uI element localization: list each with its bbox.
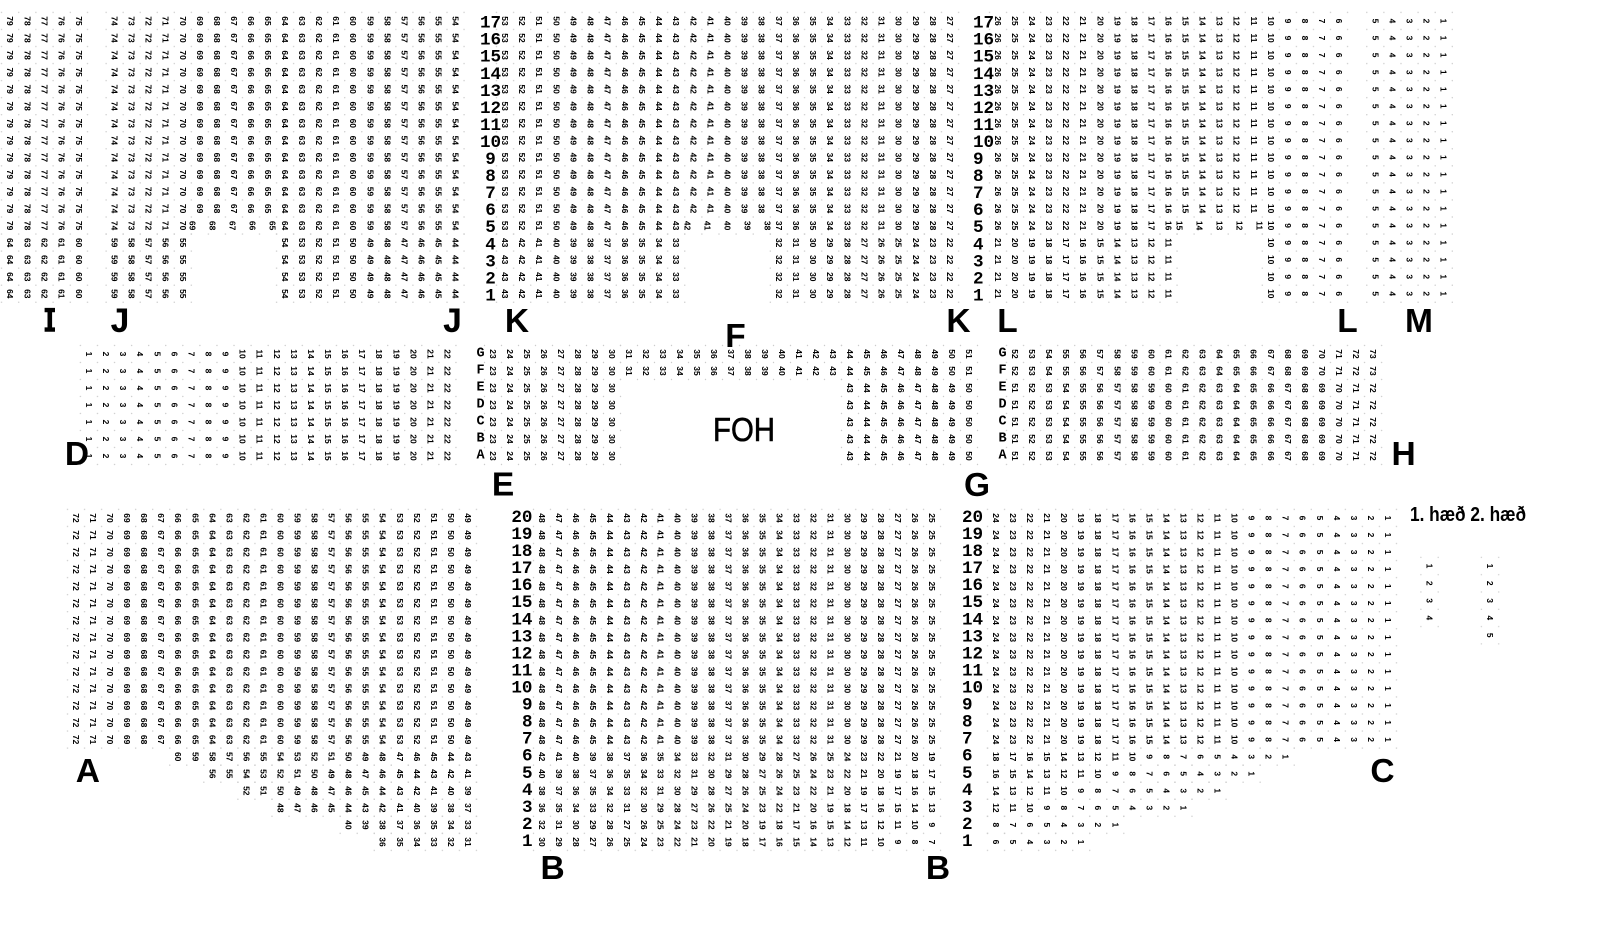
svg-text:37: 37 (603, 289, 613, 299)
svg-text:26: 26 (808, 752, 818, 762)
svg-text:79: 79 (5, 101, 15, 111)
svg-text:74: 74 (110, 50, 120, 60)
svg-text:7: 7 (1281, 703, 1291, 708)
svg-text:28: 28 (605, 820, 615, 830)
svg-text:54: 54 (451, 50, 461, 60)
svg-text:12: 12 (1196, 564, 1206, 574)
svg-text:51: 51 (534, 153, 544, 163)
svg-text:57: 57 (144, 255, 154, 265)
svg-text:20: 20 (1095, 84, 1105, 94)
svg-text:66: 66 (246, 153, 256, 163)
svg-text:46: 46 (571, 616, 581, 626)
svg-text:36: 36 (791, 136, 801, 146)
svg-text:64: 64 (1232, 417, 1242, 427)
svg-text:30: 30 (894, 221, 904, 231)
svg-text:18: 18 (1093, 581, 1103, 591)
svg-text:42: 42 (639, 598, 649, 608)
svg-text:7: 7 (1317, 70, 1327, 75)
svg-text:48: 48 (382, 255, 392, 265)
svg-text:18: 18 (1093, 650, 1103, 660)
svg-text:39: 39 (690, 735, 700, 745)
svg-text:39: 39 (740, 170, 750, 180)
svg-text:4: 4 (1387, 155, 1397, 160)
svg-text:14: 14 (1161, 718, 1171, 728)
svg-text:20: 20 (1010, 255, 1020, 265)
svg-text:18: 18 (1044, 272, 1054, 282)
svg-text:10: 10 (1093, 769, 1103, 779)
svg-text:25: 25 (1010, 221, 1020, 231)
svg-text:33: 33 (791, 547, 801, 557)
svg-text:72: 72 (144, 221, 154, 231)
svg-text:17: 17 (1110, 616, 1120, 626)
svg-text:30: 30 (607, 434, 617, 444)
svg-text:36: 36 (741, 735, 751, 745)
svg-text:64: 64 (1215, 366, 1225, 376)
svg-text:28: 28 (876, 701, 886, 711)
svg-text:6: 6 (1298, 567, 1308, 572)
svg-text:C: C (1370, 753, 1394, 790)
svg-text:9: 9 (1283, 87, 1293, 92)
svg-text:24: 24 (741, 803, 751, 813)
svg-text:56: 56 (1095, 400, 1105, 410)
svg-text:42: 42 (688, 187, 698, 197)
svg-text:36: 36 (741, 616, 751, 626)
svg-text:7: 7 (1281, 550, 1291, 555)
svg-text:58: 58 (310, 633, 320, 643)
svg-text:5: 5 (1370, 223, 1380, 228)
svg-text:42: 42 (639, 701, 649, 711)
svg-text:36: 36 (741, 598, 751, 608)
svg-text:2: 2 (1422, 70, 1432, 75)
svg-text:14: 14 (991, 786, 1001, 796)
svg-text:39: 39 (690, 616, 700, 626)
svg-text:27: 27 (945, 119, 955, 129)
svg-text:8: 8 (910, 840, 920, 845)
svg-text:12: 12 (1232, 16, 1242, 26)
svg-text:27: 27 (859, 255, 869, 265)
svg-text:35: 35 (758, 530, 768, 540)
svg-text:21: 21 (993, 272, 1003, 282)
svg-text:22: 22 (443, 349, 453, 359)
svg-text:48: 48 (537, 650, 547, 660)
svg-text:30: 30 (894, 67, 904, 77)
svg-text:41: 41 (794, 366, 804, 376)
svg-text:72: 72 (144, 33, 154, 43)
svg-text:3: 3 (1405, 189, 1415, 194)
svg-text:9: 9 (927, 823, 937, 828)
svg-text:27: 27 (945, 33, 955, 43)
svg-text:18: 18 (1093, 547, 1103, 557)
svg-text:47: 47 (554, 718, 564, 728)
svg-text:73: 73 (127, 170, 137, 180)
svg-text:12: 12 (272, 434, 282, 444)
svg-text:45: 45 (879, 417, 889, 427)
svg-text:10: 10 (910, 820, 920, 830)
svg-text:64: 64 (5, 255, 15, 265)
svg-text:41: 41 (705, 50, 715, 60)
svg-text:27: 27 (893, 633, 903, 643)
svg-text:20: 20 (1059, 513, 1069, 523)
svg-text:49: 49 (293, 786, 303, 796)
svg-text:26: 26 (877, 238, 887, 248)
svg-text:66: 66 (246, 136, 256, 146)
svg-text:28: 28 (573, 451, 583, 461)
svg-text:8: 8 (485, 167, 496, 187)
svg-text:67: 67 (229, 33, 239, 43)
svg-text:49: 49 (365, 255, 375, 265)
svg-text:41: 41 (656, 650, 666, 660)
svg-text:3: 3 (1405, 240, 1415, 245)
svg-text:45: 45 (637, 170, 647, 180)
svg-text:16: 16 (1127, 564, 1137, 574)
svg-text:47: 47 (554, 581, 564, 591)
svg-text:31: 31 (825, 667, 835, 677)
svg-text:15: 15 (1181, 187, 1191, 197)
svg-text:36: 36 (620, 255, 630, 265)
svg-text:B: B (540, 850, 564, 887)
svg-text:30: 30 (741, 752, 751, 762)
svg-text:50: 50 (551, 187, 561, 197)
svg-text:16: 16 (910, 786, 920, 796)
svg-text:24: 24 (1027, 119, 1037, 129)
svg-text:55: 55 (434, 170, 444, 180)
svg-text:64: 64 (5, 272, 15, 282)
svg-text:47: 47 (554, 650, 564, 660)
svg-text:72: 72 (144, 16, 154, 26)
svg-text:66: 66 (173, 513, 183, 523)
svg-text:3: 3 (962, 798, 973, 818)
svg-text:5: 5 (1370, 104, 1380, 109)
svg-text:11: 11 (1213, 735, 1223, 744)
svg-text:20: 20 (1059, 701, 1069, 711)
svg-text:2: 2 (1366, 533, 1376, 538)
svg-text:72: 72 (71, 530, 81, 540)
svg-text:52: 52 (517, 67, 527, 77)
svg-text:25: 25 (825, 752, 835, 762)
svg-text:41: 41 (794, 349, 804, 359)
svg-text:51: 51 (429, 701, 439, 711)
svg-text:14: 14 (306, 349, 316, 359)
svg-text:59: 59 (293, 530, 303, 540)
svg-text:61: 61 (258, 667, 268, 677)
svg-text:51: 51 (429, 667, 439, 677)
svg-text:28: 28 (707, 786, 717, 796)
svg-text:45: 45 (434, 272, 444, 282)
svg-text:36: 36 (791, 16, 801, 26)
svg-text:33: 33 (671, 238, 681, 248)
svg-text:21: 21 (1078, 101, 1088, 111)
svg-text:G: G (998, 347, 1006, 362)
svg-text:10: 10 (1230, 718, 1240, 728)
svg-text:17: 17 (480, 14, 501, 34)
svg-text:67: 67 (229, 170, 239, 180)
svg-text:28: 28 (842, 272, 852, 282)
svg-text:77: 77 (40, 187, 50, 197)
svg-text:6: 6 (1334, 172, 1344, 177)
svg-text:65: 65 (190, 667, 200, 677)
svg-text:24: 24 (505, 434, 515, 444)
svg-text:3: 3 (1213, 771, 1223, 776)
svg-text:12: 12 (1235, 221, 1245, 231)
svg-text:16: 16 (1025, 752, 1035, 762)
svg-text:53: 53 (1044, 451, 1054, 461)
svg-text:1: 1 (1439, 223, 1449, 228)
svg-text:69: 69 (122, 684, 132, 694)
svg-text:30: 30 (842, 598, 852, 608)
svg-text:55: 55 (434, 67, 444, 77)
svg-text:36: 36 (741, 684, 751, 694)
svg-text:11: 11 (1110, 752, 1120, 761)
svg-text:22: 22 (945, 238, 955, 248)
svg-text:53: 53 (395, 598, 405, 608)
svg-text:11: 11 (1249, 68, 1259, 77)
svg-text:3: 3 (1405, 104, 1415, 109)
svg-text:4: 4 (135, 403, 145, 408)
svg-text:36: 36 (791, 221, 801, 231)
svg-text:34: 34 (774, 616, 784, 626)
svg-text:19: 19 (1076, 650, 1086, 660)
svg-text:71: 71 (161, 170, 171, 180)
svg-text:30: 30 (894, 136, 904, 146)
svg-text:19: 19 (859, 786, 869, 796)
svg-text:76: 76 (57, 136, 67, 146)
svg-text:21: 21 (1042, 701, 1052, 711)
svg-text:48: 48 (586, 50, 596, 60)
svg-text:47: 47 (603, 84, 613, 94)
svg-text:7: 7 (1317, 172, 1327, 177)
svg-text:21: 21 (1078, 187, 1088, 197)
svg-text:14: 14 (1198, 67, 1208, 77)
svg-text:9: 9 (973, 150, 984, 170)
svg-text:3: 3 (118, 352, 128, 357)
svg-text:43: 43 (395, 786, 405, 796)
svg-text:68: 68 (212, 153, 222, 163)
svg-text:62: 62 (314, 187, 324, 197)
svg-text:48: 48 (537, 564, 547, 574)
svg-text:45: 45 (637, 101, 647, 111)
svg-text:38: 38 (707, 667, 717, 677)
svg-text:42: 42 (639, 735, 649, 745)
svg-text:10: 10 (238, 451, 248, 461)
svg-text:5: 5 (1370, 206, 1380, 211)
svg-text:56: 56 (344, 598, 354, 608)
svg-text:57: 57 (144, 289, 154, 299)
svg-text:10: 10 (1230, 650, 1240, 660)
svg-text:28: 28 (928, 84, 938, 94)
svg-text:53: 53 (500, 136, 510, 146)
svg-text:70: 70 (178, 153, 188, 163)
svg-text:8: 8 (204, 386, 214, 391)
svg-text:17: 17 (1147, 136, 1157, 146)
svg-text:6: 6 (1334, 274, 1344, 279)
svg-text:11: 11 (1213, 531, 1223, 540)
svg-text:48: 48 (586, 16, 596, 26)
svg-text:33: 33 (842, 16, 852, 26)
svg-text:22: 22 (443, 383, 453, 393)
svg-text:43: 43 (828, 349, 838, 359)
svg-text:7: 7 (1281, 652, 1291, 657)
svg-text:3: 3 (118, 386, 128, 391)
svg-text:52: 52 (412, 530, 422, 540)
svg-text:54: 54 (378, 581, 388, 591)
svg-text:28: 28 (573, 434, 583, 444)
svg-text:15: 15 (1181, 33, 1191, 43)
svg-text:65: 65 (1232, 366, 1242, 376)
svg-text:13: 13 (1215, 170, 1225, 180)
svg-text:5: 5 (1370, 274, 1380, 279)
svg-text:5: 5 (1315, 635, 1325, 640)
svg-text:70: 70 (178, 136, 188, 146)
svg-text:33: 33 (842, 84, 852, 94)
svg-text:1: 1 (1281, 754, 1291, 759)
svg-text:38: 38 (757, 101, 767, 111)
svg-text:13: 13 (1215, 153, 1225, 163)
svg-text:3: 3 (1405, 155, 1415, 160)
svg-text:40: 40 (344, 820, 354, 830)
svg-text:75: 75 (74, 119, 84, 129)
svg-text:37: 37 (588, 769, 598, 779)
svg-text:35: 35 (758, 547, 768, 557)
svg-text:26: 26 (993, 101, 1003, 111)
svg-text:29: 29 (911, 221, 921, 231)
svg-text:31: 31 (791, 289, 801, 299)
svg-text:6: 6 (1334, 189, 1344, 194)
svg-text:7: 7 (186, 403, 196, 408)
svg-text:4: 4 (1485, 616, 1495, 621)
svg-text:26: 26 (707, 803, 717, 813)
svg-text:63: 63 (297, 119, 307, 129)
svg-text:57: 57 (399, 221, 409, 231)
svg-text:3: 3 (1405, 206, 1415, 211)
svg-text:20: 20 (1059, 633, 1069, 643)
svg-text:16: 16 (1127, 616, 1137, 626)
svg-text:FOH: FOH (713, 412, 775, 449)
svg-text:6: 6 (1298, 635, 1308, 640)
svg-text:65: 65 (1249, 400, 1259, 410)
svg-text:31: 31 (791, 238, 801, 248)
svg-text:50: 50 (446, 513, 456, 523)
svg-text:60: 60 (348, 136, 358, 146)
svg-text:60: 60 (348, 84, 358, 94)
svg-text:46: 46 (571, 650, 581, 660)
svg-text:57: 57 (399, 119, 409, 129)
svg-text:36: 36 (741, 513, 751, 523)
svg-text:19: 19 (1076, 701, 1086, 711)
svg-text:40: 40 (723, 153, 733, 163)
svg-text:15: 15 (927, 786, 937, 796)
svg-text:41: 41 (656, 667, 666, 677)
svg-text:39: 39 (740, 84, 750, 94)
svg-text:3: 3 (522, 798, 533, 818)
svg-text:32: 32 (639, 786, 649, 796)
svg-text:42: 42 (688, 101, 698, 111)
svg-text:13: 13 (1215, 221, 1225, 231)
svg-text:55: 55 (258, 752, 268, 762)
svg-text:45: 45 (434, 289, 444, 299)
svg-text:58: 58 (310, 616, 320, 626)
svg-text:52: 52 (412, 684, 422, 694)
svg-text:9: 9 (1247, 652, 1257, 657)
svg-text:42: 42 (639, 633, 649, 643)
svg-text:40: 40 (673, 581, 683, 591)
svg-text:77: 77 (40, 16, 50, 26)
svg-text:59: 59 (1146, 400, 1156, 410)
svg-text:25: 25 (894, 255, 904, 265)
svg-text:55: 55 (178, 238, 188, 248)
svg-text:47: 47 (327, 786, 337, 796)
svg-text:15: 15 (1144, 718, 1154, 728)
svg-text:13: 13 (1178, 598, 1188, 608)
svg-text:E: E (998, 381, 1006, 396)
svg-text:31: 31 (825, 633, 835, 643)
svg-text:52: 52 (412, 547, 422, 557)
svg-text:60: 60 (276, 513, 286, 523)
svg-text:58: 58 (127, 238, 137, 248)
svg-text:39: 39 (690, 598, 700, 608)
svg-text:63: 63 (224, 513, 234, 523)
svg-text:31: 31 (877, 136, 887, 146)
svg-text:22: 22 (443, 400, 453, 410)
svg-text:17: 17 (357, 349, 367, 359)
svg-text:18: 18 (1129, 50, 1139, 60)
svg-text:68: 68 (139, 598, 149, 608)
svg-text:65: 65 (263, 204, 273, 214)
svg-text:71: 71 (161, 204, 171, 214)
svg-text:68: 68 (139, 616, 149, 626)
svg-text:31: 31 (825, 735, 835, 745)
svg-text:50: 50 (964, 383, 974, 393)
svg-text:61: 61 (331, 170, 341, 180)
svg-text:29: 29 (859, 616, 869, 626)
svg-text:62: 62 (314, 16, 324, 26)
svg-text:64: 64 (1232, 383, 1242, 393)
svg-text:48: 48 (913, 366, 923, 376)
svg-text:71: 71 (1334, 349, 1344, 359)
svg-text:56: 56 (344, 735, 354, 745)
svg-text:57: 57 (144, 238, 154, 248)
svg-text:8: 8 (1093, 788, 1103, 793)
svg-text:62: 62 (40, 255, 50, 265)
svg-text:58: 58 (382, 119, 392, 129)
svg-text:29: 29 (690, 786, 700, 796)
svg-text:20: 20 (1095, 67, 1105, 77)
svg-text:43: 43 (622, 633, 632, 643)
svg-text:30: 30 (607, 383, 617, 393)
svg-text:69: 69 (122, 513, 132, 523)
svg-text:1: 1 (1439, 121, 1449, 126)
svg-text:25: 25 (1010, 153, 1020, 163)
svg-text:6: 6 (1298, 686, 1308, 691)
svg-text:54: 54 (1044, 366, 1054, 376)
svg-text:8: 8 (1059, 806, 1069, 811)
svg-text:71: 71 (88, 530, 98, 540)
svg-text:55: 55 (361, 684, 371, 694)
svg-text:4: 4 (1387, 189, 1397, 194)
svg-text:72: 72 (1368, 383, 1378, 393)
svg-text:15: 15 (1144, 633, 1154, 643)
svg-text:12: 12 (1147, 289, 1157, 299)
svg-text:47: 47 (554, 735, 564, 745)
svg-text:25: 25 (927, 547, 937, 557)
svg-text:33: 33 (588, 803, 598, 813)
svg-text:4: 4 (1332, 533, 1342, 538)
svg-text:70: 70 (105, 684, 115, 694)
svg-text:73: 73 (127, 153, 137, 163)
svg-text:29: 29 (911, 119, 921, 129)
svg-text:25: 25 (522, 349, 532, 359)
svg-text:13: 13 (1215, 67, 1225, 77)
svg-text:60: 60 (74, 238, 84, 248)
